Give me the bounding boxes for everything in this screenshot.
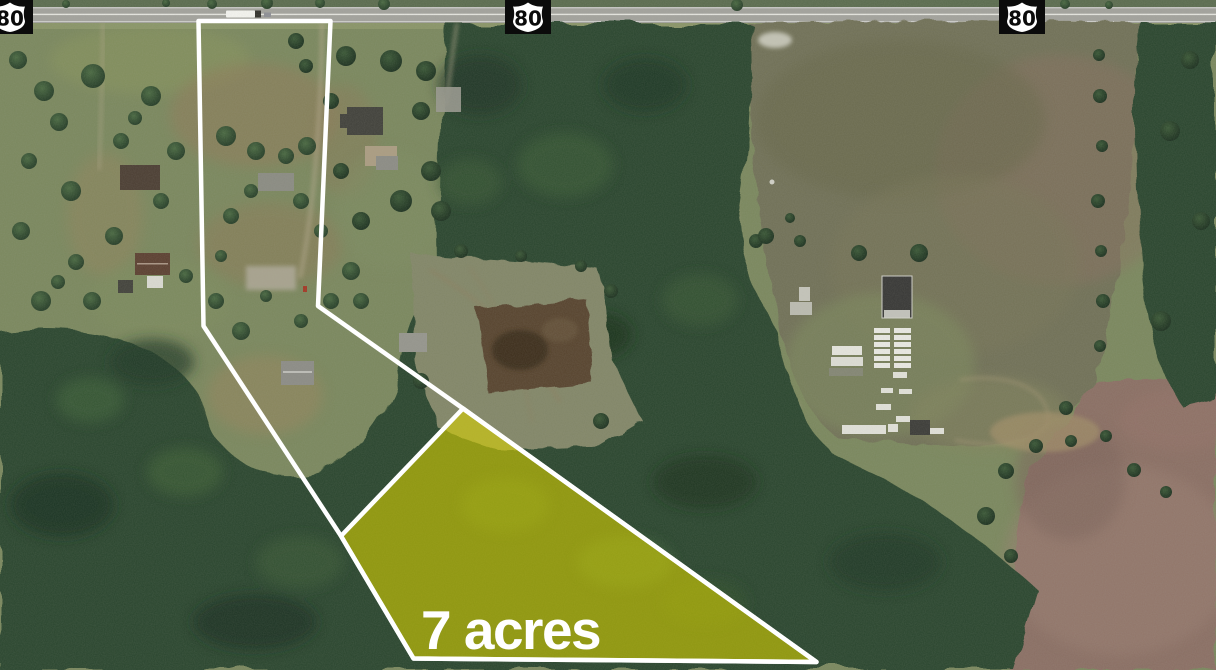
- aerial-map-canvas: 7 acres 80 80 80: [0, 0, 1216, 670]
- white-barn: [832, 346, 862, 355]
- semi-truck-trailer: [226, 11, 255, 18]
- red-object: [303, 286, 307, 292]
- concrete-pad: [246, 266, 296, 290]
- roadside-structures: [758, 32, 792, 48]
- screenshot-root: 7 acres 80 80 80: [0, 0, 1216, 670]
- hidden-roof: [258, 173, 294, 191]
- parcel-area-label: 7 acres: [421, 599, 600, 661]
- gray-structure: [436, 87, 461, 112]
- shield-route-number: 80: [1008, 7, 1036, 31]
- car: [264, 13, 271, 18]
- pasture-shed: [399, 333, 427, 352]
- small-shed: [790, 302, 812, 315]
- shield-route-number: 80: [0, 7, 24, 31]
- highway-shield-80-left: 80: [0, 0, 33, 34]
- dark-shed: [118, 280, 133, 293]
- grass-mound: [990, 412, 1100, 452]
- dark-container: [910, 420, 930, 435]
- highway-shield-80-center: 80: [505, 0, 551, 34]
- highway-shield-80-right: 80: [999, 0, 1045, 34]
- shield-route-number: 80: [514, 7, 542, 31]
- house-brown-roof: [120, 165, 160, 190]
- white-shed: [147, 276, 163, 288]
- semi-truck-cab: [255, 11, 261, 18]
